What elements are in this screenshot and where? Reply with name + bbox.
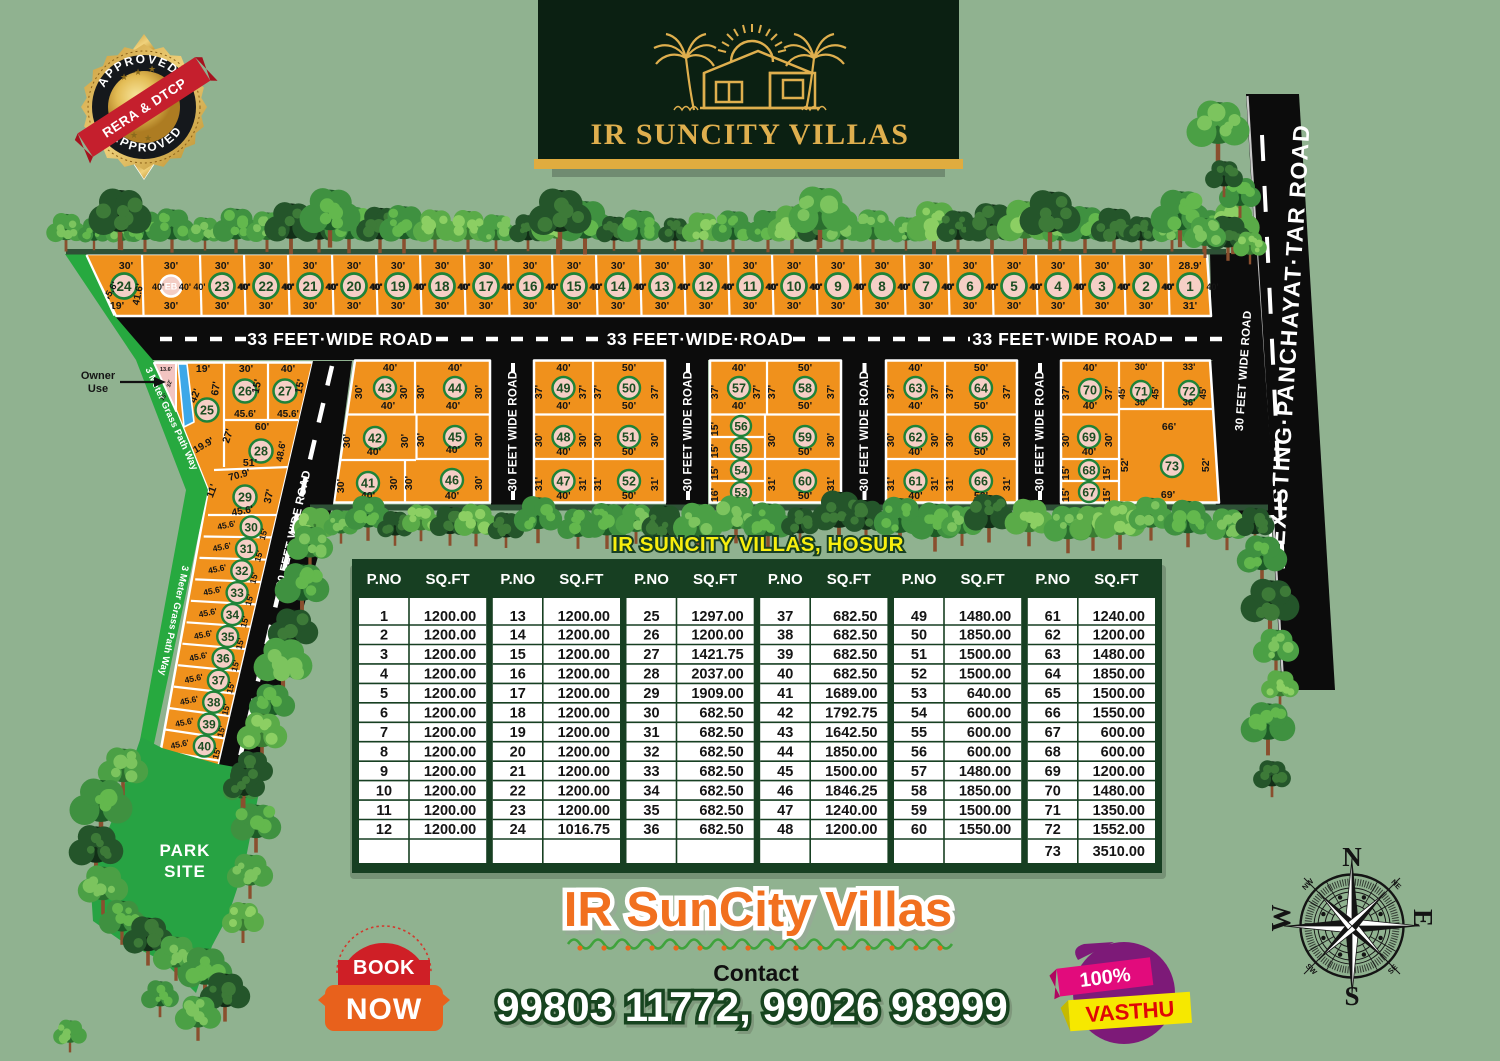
svg-text:30': 30' [743,300,757,312]
svg-text:30: 30 [643,706,659,722]
svg-text:40': 40' [767,282,779,292]
svg-text:33 FEET·WIDE ROAD: 33 FEET·WIDE ROAD [247,329,432,349]
svg-text:40': 40' [1075,282,1087,292]
svg-text:39: 39 [202,717,216,731]
svg-text:31: 31 [240,542,254,556]
svg-text:44: 44 [777,744,793,760]
svg-text:30': 30' [347,300,361,312]
svg-text:40': 40' [732,362,746,374]
svg-text:1200.00: 1200.00 [424,803,476,819]
svg-text:40': 40' [943,282,955,292]
svg-text:40': 40' [383,362,397,374]
svg-text:30': 30' [567,300,581,312]
svg-text:65: 65 [974,431,988,445]
svg-text:600.00: 600.00 [1101,744,1145,760]
svg-text:30 FEET WIDE ROAD: 30 FEET WIDE ROAD [683,371,695,492]
svg-text:72: 72 [1182,384,1196,398]
svg-text:1500.00: 1500.00 [959,667,1011,683]
svg-text:40': 40' [327,282,339,292]
svg-text:SQ.FT: SQ.FT [559,571,603,588]
svg-text:37': 37' [825,385,837,399]
svg-text:★: ★ [148,64,156,74]
svg-text:30': 30' [831,300,845,312]
svg-text:50': 50' [622,446,636,458]
svg-text:SQ.FT: SQ.FT [693,571,737,588]
svg-text:1350.00: 1350.00 [1093,803,1145,819]
svg-text:30': 30' [1139,260,1153,272]
svg-text:30': 30' [523,260,537,272]
svg-text:N: N [1342,842,1362,872]
svg-text:30': 30' [473,476,485,490]
svg-text:30': 30' [119,260,133,272]
svg-text:15': 15' [709,466,721,480]
svg-text:64: 64 [974,382,988,396]
svg-text:682.50: 682.50 [699,803,743,819]
svg-text:42: 42 [777,706,793,722]
svg-text:1200.00: 1200.00 [424,609,476,625]
svg-text:2: 2 [1142,279,1150,294]
svg-text:56: 56 [734,419,748,433]
svg-text:40': 40' [855,282,867,292]
svg-text:66': 66' [1162,421,1176,433]
svg-text:18: 18 [510,706,526,722]
svg-text:30': 30' [875,300,889,312]
svg-text:40': 40' [371,282,383,292]
svg-text:14: 14 [610,279,626,294]
svg-text:55: 55 [911,725,927,741]
svg-text:49: 49 [911,609,927,625]
svg-text:IR SunCity Villas: IR SunCity Villas [564,883,952,937]
svg-text:P.NO: P.NO [634,571,669,588]
svg-text:7: 7 [922,279,930,294]
svg-text:37': 37' [533,385,545,399]
svg-text:38: 38 [207,696,221,710]
svg-text:23: 23 [214,279,230,294]
svg-text:50': 50' [622,400,636,412]
svg-text:71: 71 [1045,803,1061,819]
svg-text:600.00: 600.00 [1101,725,1145,741]
svg-text:67: 67 [1045,725,1061,741]
svg-text:S: S [1344,981,1359,1011]
svg-text:40': 40' [1083,362,1097,374]
svg-text:59: 59 [798,431,812,445]
svg-text:71: 71 [1134,384,1148,398]
svg-text:Owner: Owner [81,370,116,382]
svg-text:40': 40' [556,446,570,458]
svg-text:37': 37' [1060,386,1072,400]
svg-text:57: 57 [732,382,746,396]
svg-text:50: 50 [622,382,636,396]
svg-text:50': 50' [798,362,812,374]
svg-text:1200.00: 1200.00 [424,764,476,780]
svg-text:14: 14 [510,628,526,644]
svg-text:37': 37' [592,385,604,399]
svg-text:68: 68 [1045,744,1061,760]
svg-text:73: 73 [1165,460,1179,474]
svg-text:682.50: 682.50 [699,764,743,780]
svg-text:40': 40' [547,282,559,292]
svg-text:NOW: NOW [346,993,422,1026]
svg-text:72: 72 [1045,822,1061,838]
svg-text:67: 67 [1082,485,1096,499]
svg-text:30': 30' [303,260,317,272]
svg-text:63: 63 [1045,647,1061,663]
svg-text:44: 44 [448,382,462,396]
svg-text:1200.00: 1200.00 [424,822,476,838]
svg-text:30': 30' [929,433,941,447]
svg-text:28.9': 28.9' [1179,260,1202,272]
svg-text:1200.00: 1200.00 [558,783,610,799]
svg-text:3: 3 [1098,279,1106,294]
svg-text:36': 36' [1183,398,1196,409]
svg-text:P.NO: P.NO [902,571,937,588]
svg-text:682.50: 682.50 [833,667,877,683]
svg-text:12: 12 [698,279,713,294]
svg-text:40': 40' [1031,282,1043,292]
svg-text:37': 37' [885,385,897,399]
svg-text:★: ★ [144,133,152,143]
svg-text:48: 48 [557,431,571,445]
svg-text:EB: EB [165,282,178,292]
svg-text:57: 57 [911,764,927,780]
svg-text:30': 30' [435,300,449,312]
svg-text:27: 27 [278,385,292,399]
svg-text:20: 20 [346,279,361,294]
svg-text:1550.00: 1550.00 [959,822,1011,838]
svg-text:17: 17 [478,279,493,294]
svg-text:50': 50' [974,362,988,374]
svg-text:30': 30' [963,260,977,272]
svg-text:15': 15' [1060,488,1072,502]
svg-text:15: 15 [566,279,582,294]
svg-text:1200.00: 1200.00 [424,744,476,760]
svg-text:1480.00: 1480.00 [1093,783,1145,799]
svg-text:7: 7 [380,725,388,741]
svg-text:40': 40' [179,282,191,292]
svg-text:1850.00: 1850.00 [959,783,1011,799]
svg-text:37': 37' [929,385,941,399]
svg-text:50': 50' [974,400,988,412]
svg-text:37': 37' [766,385,778,399]
svg-text:15': 15' [709,444,721,458]
svg-text:28: 28 [643,667,659,683]
svg-text:40': 40' [1083,400,1097,412]
svg-text:11: 11 [376,803,391,819]
svg-text:62: 62 [909,431,923,445]
svg-text:30': 30' [335,479,347,493]
svg-text:P.NO: P.NO [768,571,803,588]
svg-text:15': 15' [1060,466,1072,480]
svg-text:E: E [1408,909,1438,927]
svg-text:SQ.FT: SQ.FT [426,571,470,588]
svg-text:40': 40' [556,490,570,502]
svg-text:21: 21 [510,764,526,780]
svg-text:58: 58 [911,783,927,799]
svg-text:IR SUNCITY VILLAS: IR SUNCITY VILLAS [591,118,910,151]
svg-text:70: 70 [1083,384,1097,398]
svg-text:27: 27 [643,647,659,663]
svg-text:61: 61 [909,475,923,489]
svg-text:21: 21 [302,279,318,294]
svg-text:47: 47 [777,803,793,819]
svg-text:31': 31' [825,477,837,491]
svg-text:18: 18 [434,279,450,294]
svg-text:30': 30' [592,433,604,447]
svg-text:40': 40' [908,400,922,412]
svg-text:5: 5 [1010,279,1018,294]
svg-text:30': 30' [353,385,365,399]
svg-text:15': 15' [1101,488,1113,502]
svg-text:45: 45 [448,431,462,445]
svg-text:30': 30' [1095,260,1109,272]
svg-text:40': 40' [556,362,570,374]
svg-text:30': 30' [479,300,493,312]
svg-text:682.50: 682.50 [833,628,877,644]
svg-text:1552.00: 1552.00 [1093,822,1145,838]
svg-text:40': 40' [459,282,471,292]
svg-text:640.00: 640.00 [967,686,1011,702]
svg-text:30: 30 [244,520,258,534]
svg-text:26: 26 [643,628,659,644]
svg-text:40': 40' [591,282,603,292]
svg-text:1850.00: 1850.00 [1093,667,1145,683]
svg-text:600.00: 600.00 [967,706,1011,722]
svg-text:BOOK: BOOK [353,957,415,979]
svg-text:39: 39 [777,647,793,663]
svg-text:20: 20 [510,744,526,760]
svg-text:31': 31' [766,477,778,491]
svg-text:30': 30' [391,260,405,272]
svg-text:16: 16 [522,279,538,294]
svg-text:30': 30' [533,433,545,447]
svg-text:40': 40' [899,282,911,292]
svg-text:30': 30' [259,260,273,272]
svg-text:1200.00: 1200.00 [558,667,610,683]
svg-text:33': 33' [1183,362,1196,373]
svg-text:63: 63 [909,382,923,396]
svg-text:69: 69 [1045,764,1061,780]
svg-text:40': 40' [503,282,515,292]
svg-text:P.NO: P.NO [500,571,535,588]
svg-text:1846.25: 1846.25 [825,783,877,799]
svg-text:682.50: 682.50 [699,744,743,760]
svg-text:15: 15 [510,647,526,663]
svg-text:37': 37' [649,385,661,399]
svg-text:30': 30' [699,260,713,272]
svg-text:Use: Use [88,383,108,395]
svg-text:4: 4 [380,667,388,683]
svg-text:30': 30' [473,433,485,447]
svg-text:38: 38 [777,628,793,644]
svg-text:40': 40' [446,444,460,456]
svg-text:67': 67' [209,381,223,397]
svg-text:33: 33 [230,586,244,600]
svg-text:36: 36 [216,652,230,666]
svg-text:30': 30' [388,476,400,490]
svg-text:30 FEET WIDE ROAD: 30 FEET WIDE ROAD [1035,371,1047,492]
svg-text:10: 10 [786,279,801,294]
svg-text:68: 68 [1082,463,1096,477]
svg-text:37': 37' [751,385,763,399]
svg-text:1500.00: 1500.00 [959,647,1011,663]
svg-text:15': 15' [709,422,721,436]
svg-text:31': 31' [1183,300,1197,312]
svg-text:52': 52' [1200,458,1212,472]
svg-text:30': 30' [1001,433,1013,447]
svg-text:SITE: SITE [164,862,206,881]
svg-text:600.00: 600.00 [967,725,1011,741]
svg-text:12: 12 [376,822,392,838]
svg-text:1480.00: 1480.00 [959,609,1011,625]
svg-text:40': 40' [723,282,735,292]
svg-text:30': 30' [403,476,415,490]
svg-text:30': 30' [699,300,713,312]
svg-text:40': 40' [987,282,999,292]
svg-text:11: 11 [743,279,758,294]
svg-text:31: 31 [643,725,659,741]
svg-text:1200.00: 1200.00 [558,686,610,702]
svg-text:30': 30' [399,434,411,448]
svg-text:50': 50' [798,446,812,458]
svg-text:31': 31' [649,477,661,491]
svg-text:30': 30' [567,260,581,272]
svg-text:1500.00: 1500.00 [825,764,877,780]
svg-text:51: 51 [622,431,636,445]
svg-text:30 FEET WIDE ROAD: 30 FEET WIDE ROAD [508,371,520,492]
svg-text:35: 35 [221,630,235,644]
svg-text:1297.00: 1297.00 [691,609,743,625]
svg-text:23: 23 [510,803,526,819]
svg-text:54: 54 [734,463,748,477]
svg-text:30': 30' [611,300,625,312]
svg-text:682.50: 682.50 [699,706,743,722]
svg-text:37': 37' [709,385,721,399]
svg-text:46: 46 [445,474,459,488]
svg-text:55: 55 [734,441,748,455]
svg-text:30': 30' [1103,433,1115,447]
svg-text:30': 30' [303,300,317,312]
svg-text:50': 50' [798,400,812,412]
svg-text:30': 30' [831,260,845,272]
svg-text:1240.00: 1240.00 [1093,609,1145,625]
svg-text:40': 40' [908,446,922,458]
svg-text:1: 1 [380,609,388,625]
svg-text:40': 40' [635,282,647,292]
svg-text:42: 42 [368,432,382,446]
svg-text:682.50: 682.50 [699,725,743,741]
svg-text:40: 40 [777,667,793,683]
svg-text:30': 30' [1051,260,1065,272]
svg-text:52: 52 [622,475,636,489]
svg-text:1200.00: 1200.00 [558,706,610,722]
svg-text:16': 16' [709,488,721,502]
svg-text:2037.00: 2037.00 [691,667,743,683]
svg-text:40': 40' [193,282,205,292]
svg-text:40': 40' [281,363,295,375]
svg-text:17: 17 [510,686,526,702]
svg-text:58: 58 [798,382,812,396]
svg-text:1480.00: 1480.00 [1093,647,1145,663]
svg-text:13.6': 13.6' [160,367,173,373]
svg-text:48: 48 [777,822,793,838]
svg-text:30': 30' [1060,433,1072,447]
svg-text:30': 30' [435,260,449,272]
svg-text:★: ★ [120,72,128,82]
svg-text:2: 2 [380,628,388,644]
svg-text:29: 29 [643,686,659,702]
svg-text:43: 43 [777,725,793,741]
svg-text:30': 30' [787,300,801,312]
svg-text:30': 30' [787,260,801,272]
svg-text:33 FEET·WIDE ROAD: 33 FEET·WIDE ROAD [972,329,1157,349]
svg-text:29: 29 [238,491,252,505]
svg-text:37: 37 [212,674,226,688]
svg-text:1200.00: 1200.00 [424,628,476,644]
svg-text:31': 31' [533,477,545,491]
svg-text:30': 30' [875,260,889,272]
svg-text:1200.00: 1200.00 [424,783,476,799]
svg-text:22: 22 [510,783,526,799]
svg-text:37: 37 [777,609,793,625]
svg-text:30': 30' [215,300,229,312]
svg-text:50': 50' [622,362,636,374]
svg-text:33: 33 [643,764,659,780]
svg-text:4: 4 [1054,279,1062,294]
svg-text:30': 30' [743,260,757,272]
svg-text:3510.00: 3510.00 [1093,844,1145,860]
svg-text:30': 30' [649,433,661,447]
svg-text:36: 36 [643,822,659,838]
svg-text:30': 30' [479,260,493,272]
svg-text:45': 45' [1151,387,1162,400]
svg-text:69: 69 [1082,431,1096,445]
svg-text:1200.00: 1200.00 [424,647,476,663]
svg-text:60: 60 [798,475,812,489]
svg-text:1200.00: 1200.00 [424,706,476,722]
svg-text:30 FEET WIDE ROAD: 30 FEET WIDE ROAD [859,371,871,492]
svg-text:1200.00: 1200.00 [558,764,610,780]
svg-text:35: 35 [643,803,659,819]
svg-text:32: 32 [235,564,249,578]
svg-text:45.6': 45.6' [234,409,256,420]
svg-text:66: 66 [974,475,988,489]
svg-text:34: 34 [643,783,659,799]
svg-text:10: 10 [376,783,392,799]
svg-text:1850.00: 1850.00 [825,744,877,760]
svg-text:50': 50' [622,490,636,502]
svg-text:30': 30' [577,433,589,447]
svg-text:19: 19 [510,725,526,741]
svg-text:30': 30' [963,300,977,312]
svg-text:30': 30' [164,260,178,272]
svg-text:52: 52 [911,667,927,683]
svg-text:40': 40' [415,282,427,292]
svg-text:15': 15' [1101,466,1113,480]
svg-text:30': 30' [341,434,353,448]
svg-text:682.50: 682.50 [833,609,877,625]
svg-text:30': 30' [398,385,410,399]
svg-text:40': 40' [1207,282,1219,292]
svg-text:40': 40' [732,400,746,412]
svg-text:22: 22 [258,279,273,294]
svg-text:40': 40' [811,282,823,292]
svg-text:30': 30' [347,260,361,272]
svg-text:1200.00: 1200.00 [424,686,476,702]
svg-text:30': 30' [239,363,253,375]
svg-text:30': 30' [1051,300,1065,312]
svg-text:30': 30' [655,260,669,272]
svg-text:60': 60' [255,421,269,433]
